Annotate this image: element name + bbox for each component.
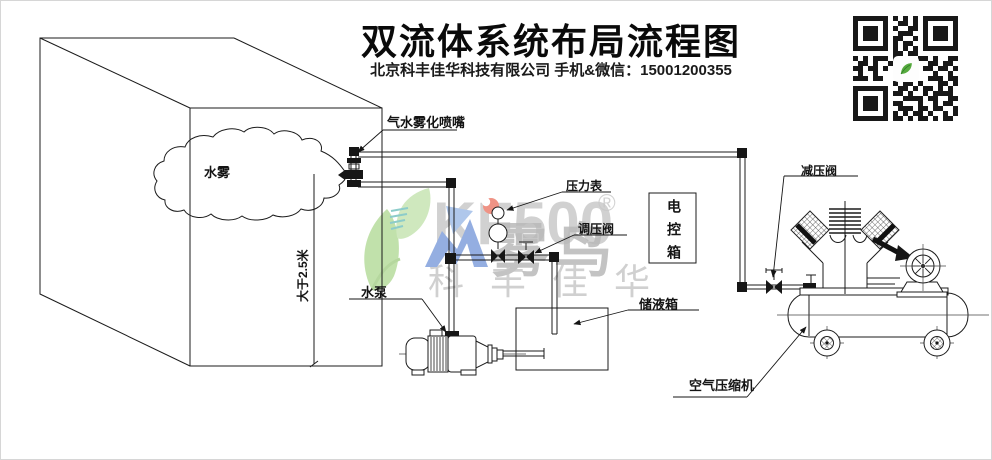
label-control-box: 电控箱 [664, 199, 684, 261]
label-air-compressor: 空气压缩机 [689, 375, 754, 394]
mist-cloud [154, 127, 346, 220]
room-box [40, 38, 382, 366]
label-height-dimension: 大于2.5米 [294, 249, 311, 302]
qr-module [953, 66, 958, 71]
qr-module [873, 106, 878, 111]
qr-module [953, 56, 958, 61]
qr-module [908, 116, 913, 121]
qr-module [913, 86, 918, 91]
qr-module [883, 116, 888, 121]
qr-module [948, 116, 953, 121]
label-regulating-valve: 调压阀 [578, 220, 614, 237]
label-atomizing-nozzle: 气水雾化喷嘴 [387, 112, 465, 131]
label-liquid-tank: 储液箱 [639, 294, 678, 313]
qr-module [913, 26, 918, 31]
label-pressure-gauge: 压力表 [566, 177, 602, 194]
liquid-tank-symbol [516, 308, 608, 370]
qr-module [943, 36, 948, 41]
page-subtitle: 北京科丰佳华科技有限公司 手机&微信：15001200355 [301, 59, 801, 80]
qr-module [898, 116, 903, 121]
page-title: 双流体系统布局流程图 [301, 13, 801, 65]
qr-code [853, 16, 958, 121]
water-pump-symbol [399, 330, 544, 375]
qr-module [953, 111, 958, 116]
qr-center-logo-icon [893, 56, 919, 82]
qr-module [953, 46, 958, 51]
qr-module [883, 46, 888, 51]
watermark-logo: KF500 ® 雾鸟 科丰佳华 [364, 188, 676, 302]
qr-module [863, 76, 868, 81]
qr-module [878, 76, 883, 81]
height-dimension-line [310, 174, 318, 367]
label-water-pump: 水泵 [361, 282, 387, 301]
qr-module [953, 96, 958, 101]
qr-module [953, 81, 958, 86]
qr-module [933, 116, 938, 121]
qr-module [913, 36, 918, 41]
qr-module [923, 116, 928, 121]
air-compressor-symbol [777, 201, 989, 359]
qr-module [883, 66, 888, 71]
flow-diagram-page: KF500 ® 雾鸟 科丰佳华 [0, 0, 992, 460]
label-water-mist: 水雾 [204, 162, 230, 181]
qr-module [873, 36, 878, 41]
label-reducing-valve: 减压阀 [801, 162, 837, 179]
watermark-registered-icon: ® [598, 190, 616, 217]
